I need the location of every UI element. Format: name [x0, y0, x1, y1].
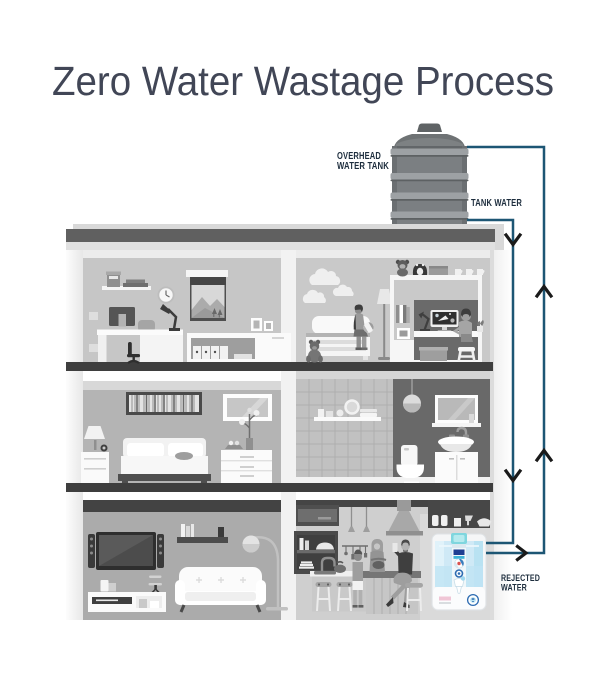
svg-text:TANK WATER: TANK WATER: [471, 198, 522, 209]
svg-text:WATER: WATER: [501, 583, 527, 593]
svg-text:WATER TANK: WATER TANK: [337, 161, 389, 172]
svg-text:REJECTED: REJECTED: [501, 573, 540, 583]
svg-text:Zero Water Wastage Process: Zero Water Wastage Process: [52, 58, 554, 104]
